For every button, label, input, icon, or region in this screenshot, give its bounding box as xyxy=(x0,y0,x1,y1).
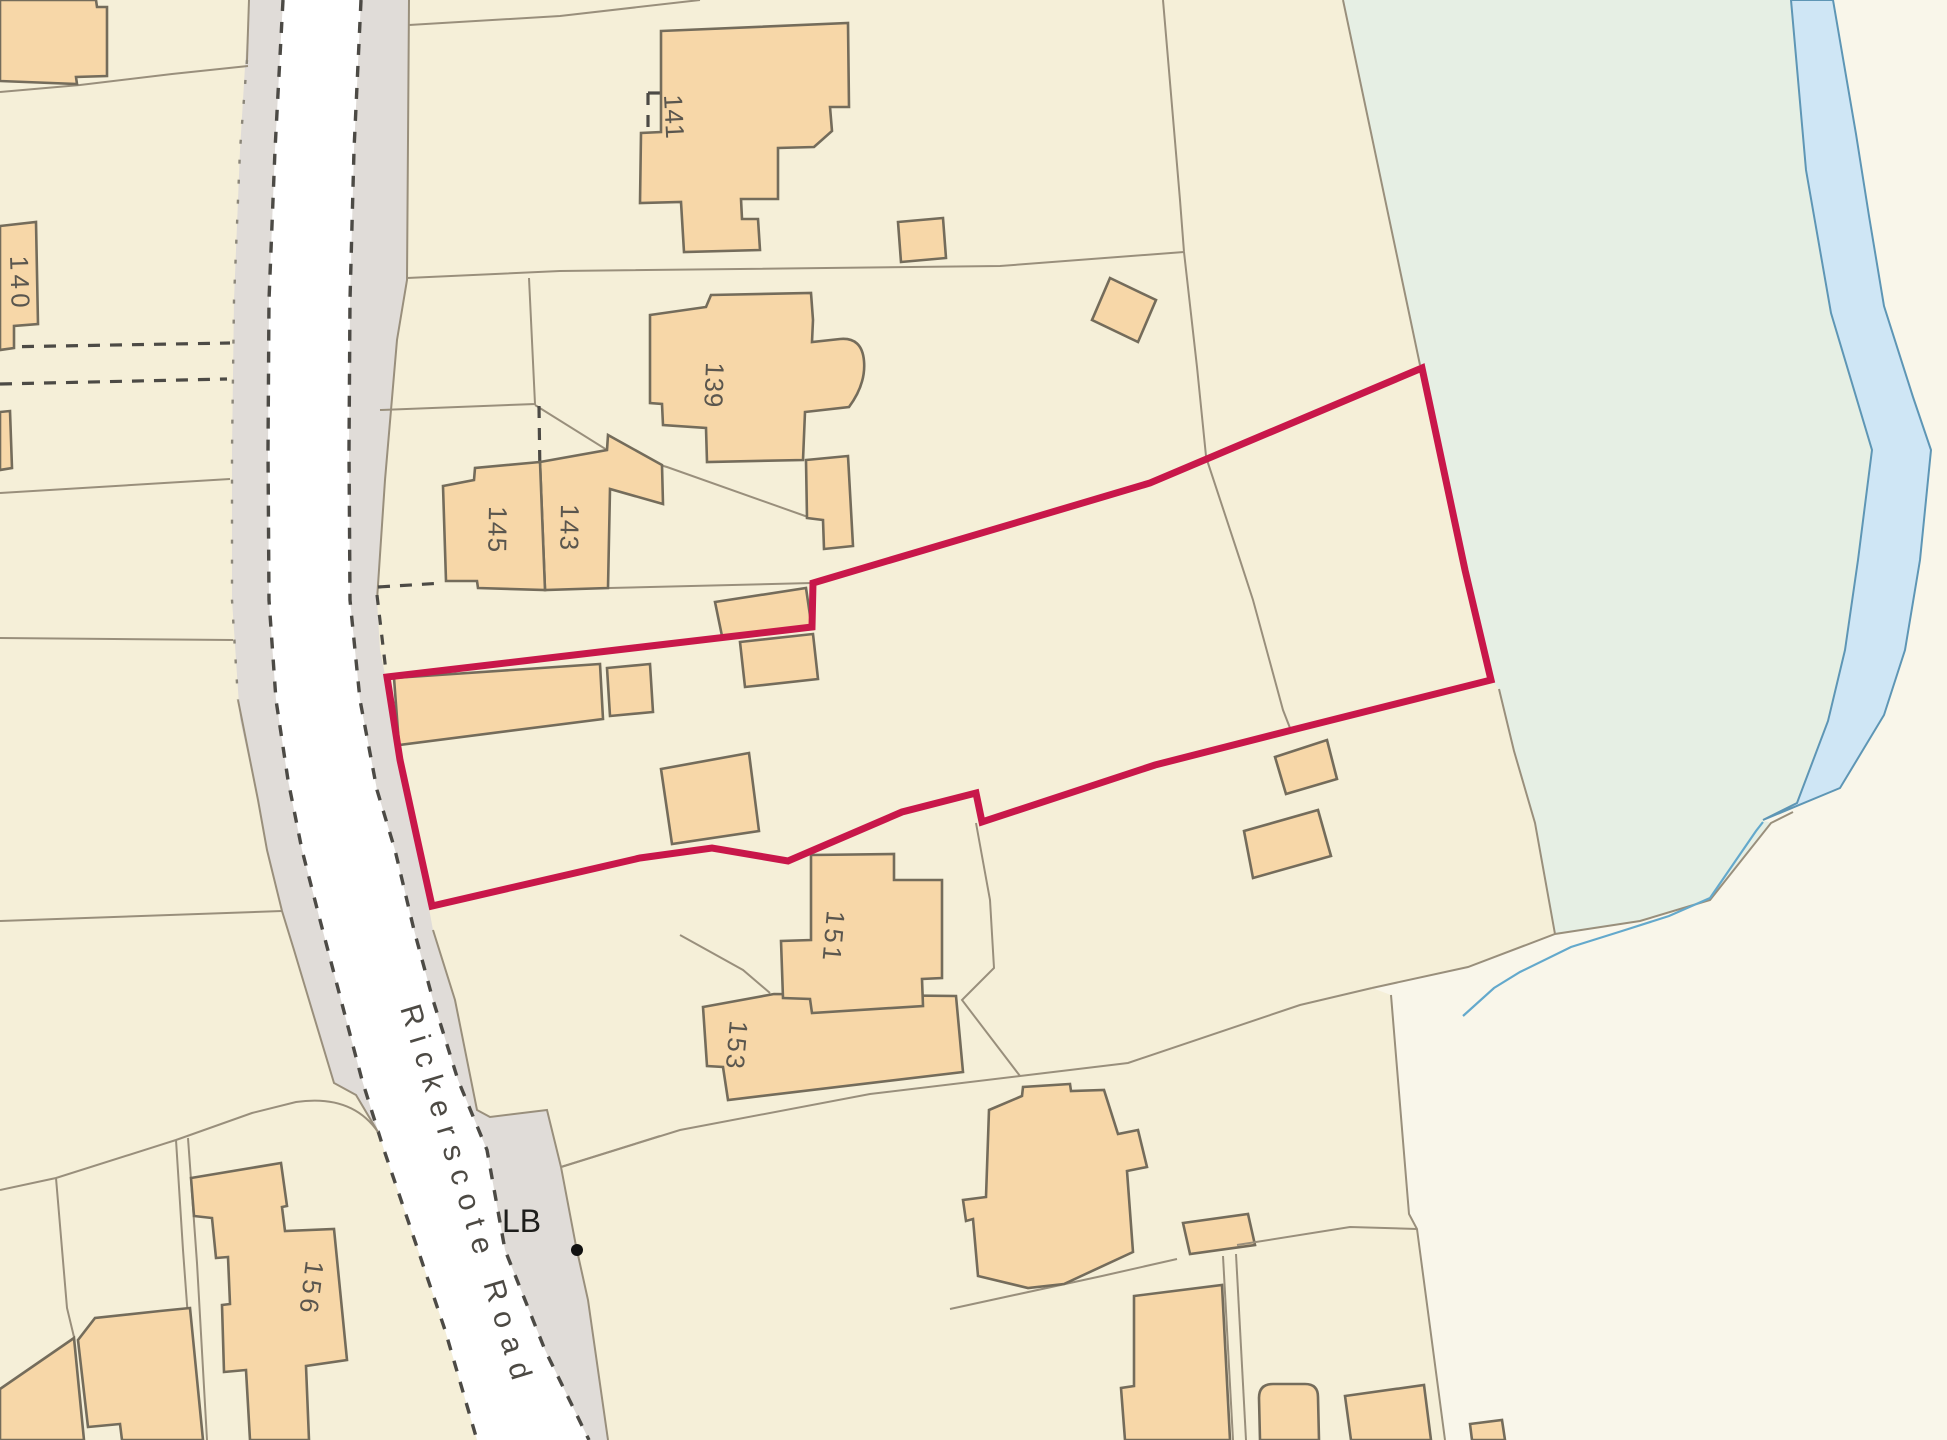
svg-text:156: 156 xyxy=(294,1259,330,1314)
svg-text:LB: LB xyxy=(502,1203,541,1239)
svg-text:153: 153 xyxy=(720,1019,754,1069)
svg-text:145: 145 xyxy=(482,506,513,553)
svg-text:151: 151 xyxy=(817,909,851,961)
svg-text:140: 140 xyxy=(4,255,36,308)
svg-text:139: 139 xyxy=(698,362,730,408)
svg-text:141: 141 xyxy=(658,94,690,140)
svg-text:143: 143 xyxy=(554,504,585,551)
